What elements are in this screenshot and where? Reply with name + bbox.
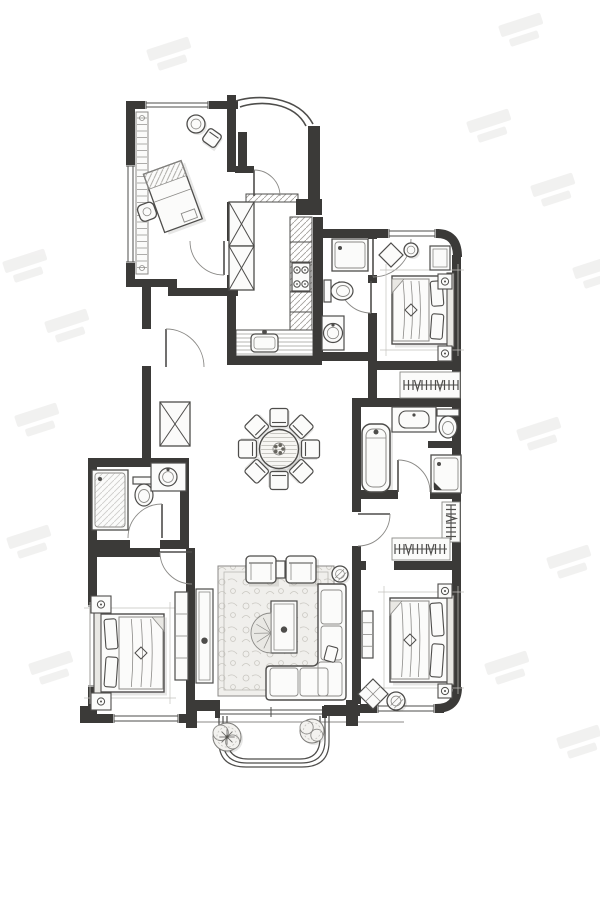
wall-segment [352, 499, 361, 512]
small-bath-basin [324, 323, 343, 342]
wall-segment [238, 132, 247, 168]
pillow [430, 314, 444, 340]
wall-segment [160, 540, 188, 549]
plan-element [246, 556, 276, 583]
master-bath-sink [399, 411, 429, 428]
dining-table [260, 430, 299, 469]
pillow [430, 644, 444, 678]
centerpiece [281, 447, 285, 451]
living-armchair [246, 556, 279, 587]
plan-element [444, 590, 446, 592]
plan-element [302, 440, 320, 458]
wall-segment [394, 561, 461, 570]
plan-element [324, 280, 331, 302]
plan-element [100, 604, 102, 606]
master-bed [378, 586, 464, 694]
plan-element [270, 472, 288, 490]
plan-element [444, 690, 446, 692]
wall-segment [352, 403, 361, 499]
screenshot-root [0, 0, 600, 900]
wall-segment [313, 352, 377, 361]
small-bath-shower [332, 239, 368, 271]
wall-segment [235, 166, 254, 173]
bedroom3-bed [84, 602, 176, 704]
plan-element [331, 323, 334, 326]
window-gap [113, 714, 179, 723]
pillow [430, 314, 444, 340]
door-post [215, 706, 220, 718]
wall-segment [142, 287, 151, 329]
wall-segment [178, 714, 195, 723]
pillow [104, 619, 118, 650]
plan-element [270, 409, 288, 427]
dining-chair [299, 440, 320, 460]
door-post [322, 706, 327, 718]
living-armchair [286, 556, 319, 587]
wall-segment [296, 199, 322, 215]
bath2-basin [159, 468, 177, 486]
tv-console [196, 589, 213, 683]
dining-table-set [239, 409, 320, 490]
plan-element [437, 462, 441, 466]
pillow [430, 603, 444, 637]
plan-element [225, 735, 228, 738]
master-bath-shower [431, 455, 461, 493]
wall-segment [88, 540, 130, 549]
bedroom3-wardrobe [175, 592, 188, 680]
plan-element [276, 561, 285, 578]
plan-element [444, 353, 446, 355]
plan-element [437, 409, 459, 416]
duvet [391, 601, 429, 679]
plan-element [412, 413, 415, 416]
bedroom3-window [113, 714, 179, 723]
plan-element [187, 115, 205, 133]
headboard [447, 595, 454, 685]
plan-element [98, 477, 102, 481]
study-bookshelf [136, 112, 148, 274]
plan-element [201, 638, 207, 644]
dining-chair [270, 409, 290, 430]
pillow [104, 657, 118, 688]
plan-element [332, 566, 348, 582]
wall-segment [428, 441, 461, 448]
master-nightstand [438, 684, 452, 698]
bedroom3-nightstand [91, 596, 111, 613]
plan-element [374, 430, 379, 435]
pillow [104, 619, 118, 650]
plan-element [196, 589, 213, 683]
living-coffee-table [271, 601, 297, 653]
plan-element [404, 243, 418, 257]
wall-segment [88, 548, 160, 557]
closet-rail [392, 538, 450, 560]
bedroom3-nightstand [91, 693, 111, 710]
window-gap [388, 229, 436, 238]
closet-rail [442, 502, 460, 542]
pillow [430, 603, 444, 637]
master-bath-tub [362, 424, 393, 496]
wall-segment [346, 700, 358, 726]
utility-shaft [160, 402, 190, 446]
centerpiece [278, 451, 282, 455]
study-window [145, 101, 209, 109]
centerpiece [278, 443, 282, 447]
wall-segment [142, 366, 151, 458]
kitchen-stove [292, 263, 310, 291]
wall-segment [126, 101, 148, 109]
master-bench [362, 611, 373, 658]
duvet [393, 279, 429, 341]
centerpiece [274, 450, 278, 454]
pillow [430, 644, 444, 678]
plan-element [338, 246, 342, 250]
plan-element [239, 440, 257, 458]
plan-element [296, 269, 298, 271]
headboard [94, 611, 101, 695]
plan-element [95, 473, 125, 527]
plan-element [286, 556, 316, 583]
pillow [104, 657, 118, 688]
dining-chair [239, 438, 260, 458]
plan-element [304, 269, 306, 271]
plan-element [281, 626, 287, 632]
wall-segment [352, 398, 461, 407]
wall-segment [368, 229, 377, 239]
wall-segment [126, 279, 174, 287]
wall-segment [368, 361, 461, 370]
wall-segment [227, 356, 322, 365]
floor-plan-image [0, 0, 600, 900]
bedroom2-dresser [430, 246, 450, 270]
master-bath-toilet [437, 409, 459, 438]
hall-cabinet [229, 246, 254, 290]
plan-element [262, 330, 267, 335]
wall-segment [227, 288, 236, 365]
plan-element [387, 692, 405, 710]
dining-chair [268, 469, 288, 490]
study-side-window [126, 165, 135, 263]
bedroom2-nightstand [438, 274, 452, 289]
window-gap [126, 165, 135, 263]
master-nightstand [438, 584, 452, 598]
plan-element [100, 701, 102, 703]
bedroom2-window [388, 229, 436, 238]
wall-segment [352, 570, 361, 704]
centerpiece [274, 445, 278, 449]
wall-segment [227, 95, 236, 172]
bath2-shower [92, 470, 128, 530]
plan-element [136, 112, 148, 274]
window-gap [145, 101, 209, 109]
plan-element [444, 281, 446, 283]
wall-segment [352, 561, 366, 570]
plan-element [304, 283, 306, 285]
wall-segment [308, 126, 320, 202]
plan-element [296, 283, 298, 285]
wall-segment [126, 101, 135, 166]
bedroom2-closet-rail [400, 372, 460, 398]
wall-segment [313, 229, 377, 238]
duvet [119, 617, 163, 689]
plan-element [166, 468, 169, 471]
small-bath-toilet [324, 280, 353, 302]
living-side-table [276, 561, 285, 578]
plan-element [332, 239, 368, 271]
bedroom2-nightstand [438, 346, 452, 361]
hall-cabinet [229, 202, 254, 246]
